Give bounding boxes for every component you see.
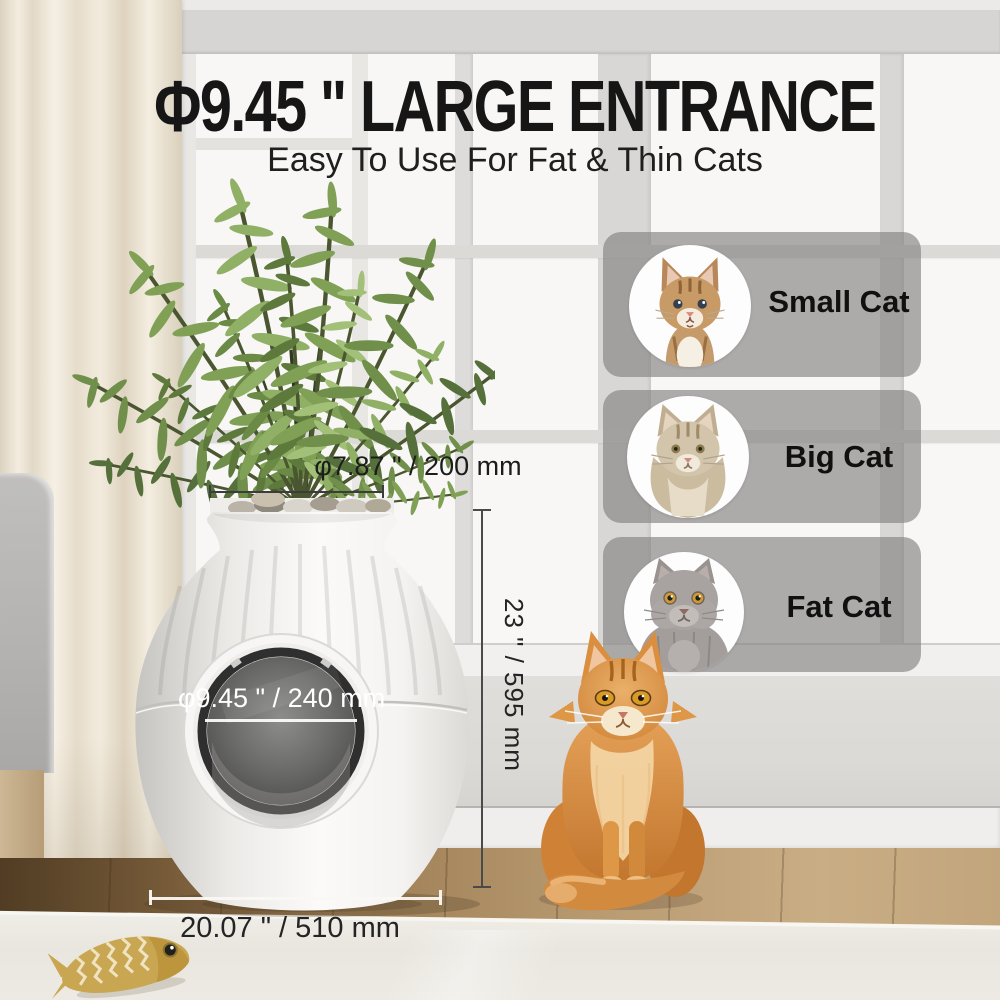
dimension-label-height: 23 " / 595 mm: [498, 598, 529, 772]
dimension-cap: [473, 509, 491, 511]
big-cat-icon: [627, 396, 749, 518]
fish-toy: [48, 925, 223, 1000]
page-title: Φ9.45 " LARGE ENTRANCE: [15, 66, 1000, 148]
size-card-label: Big Cat: [756, 439, 922, 475]
dimension-line-width: [150, 897, 442, 900]
product-scene: Φ9.45 " LARGE ENTRANCE Easy To Use For F…: [0, 0, 1000, 1000]
dimension-tick: [439, 890, 442, 905]
dimension-line-height: [481, 510, 483, 888]
dimension-tick: [382, 485, 384, 498]
orange-cat: [533, 625, 717, 917]
size-card-label: Fat Cat: [756, 589, 922, 625]
sofa-arm: [0, 473, 54, 773]
dimension-tick: [209, 485, 211, 498]
dimension-line-entrance: [205, 719, 357, 722]
cat-head: [549, 631, 697, 740]
dimension-cap: [473, 886, 491, 888]
dimension-tick: [149, 890, 152, 905]
page-title-text: Φ9.45 " LARGE ENTRANCE: [154, 66, 875, 148]
dimension-line-top-opening: [210, 491, 384, 493]
entrance: [184, 634, 378, 828]
dimension-label-top-opening: φ7.87 " / 200 mm: [308, 451, 528, 482]
kitten-icon: [629, 245, 751, 367]
dimension-label-entrance: φ9.45 " / 240 mm: [178, 683, 384, 714]
window-frame-top: [175, 0, 1000, 10]
small-cat-photo: [629, 245, 751, 367]
window-mullion-top: [175, 10, 1000, 54]
big-cat-photo: [627, 396, 749, 518]
sofa-leg: [0, 770, 44, 858]
size-card-label: Small Cat: [756, 284, 922, 320]
